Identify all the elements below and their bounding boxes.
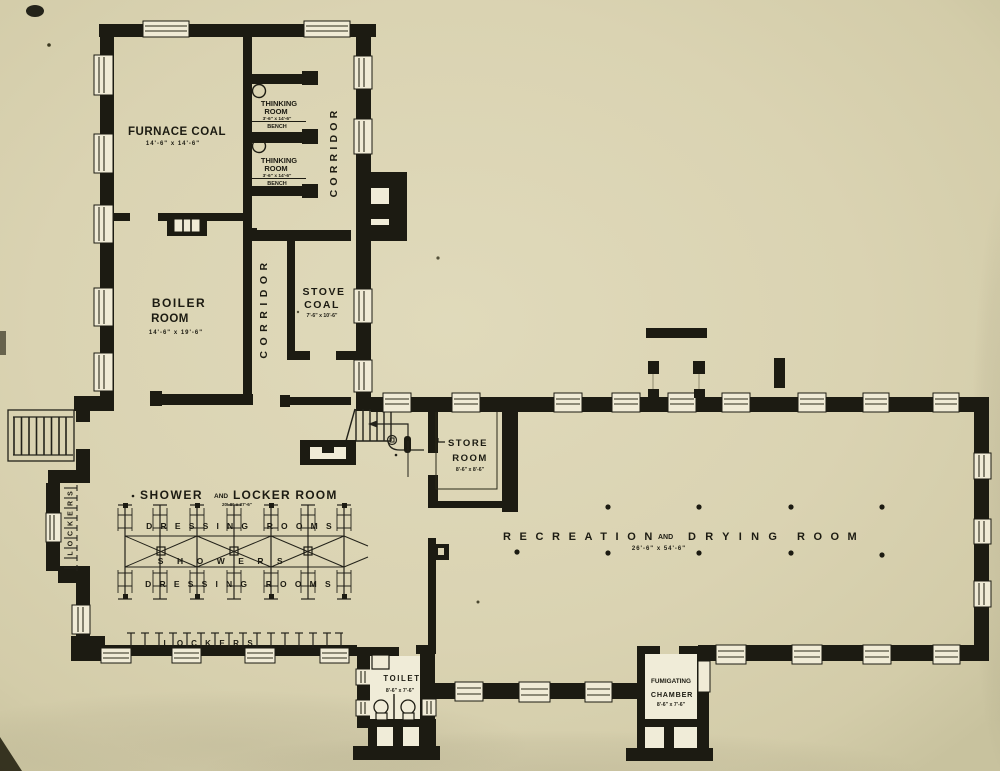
svg-text:14'-6" x 14'-6": 14'-6" x 14'-6"	[146, 141, 200, 147]
svg-text:FUMIGATING: FUMIGATING	[651, 678, 691, 685]
svg-text:ROOM: ROOM	[264, 107, 287, 116]
svg-text:E: E	[219, 639, 225, 648]
svg-text:STOVE: STOVE	[303, 286, 346, 298]
svg-text:L: L	[164, 639, 169, 648]
svg-text:S: S	[67, 491, 74, 496]
svg-text:BENCH: BENCH	[267, 181, 287, 187]
svg-text:8'-6" x 7'-6": 8'-6" x 7'-6"	[386, 688, 415, 694]
svg-text:SHOWERS: SHOWERS	[158, 556, 296, 566]
svg-text:C: C	[191, 639, 197, 648]
svg-text:DRESSING ROOMS: DRESSING ROOMS	[145, 579, 339, 589]
svg-text:STORE: STORE	[448, 438, 488, 449]
svg-text:CORRIDOR: CORRIDOR	[258, 257, 270, 358]
svg-text:ROOM: ROOM	[797, 531, 865, 543]
svg-text:R: R	[233, 639, 239, 648]
svg-text:26'-6" x 54'-6": 26'-6" x 54'-6"	[632, 546, 686, 552]
svg-text:ROOM: ROOM	[151, 313, 189, 325]
svg-text:CORRIDOR: CORRIDOR	[328, 107, 340, 198]
svg-text:ROOM: ROOM	[264, 164, 287, 173]
svg-text:AND: AND	[214, 493, 228, 500]
svg-text:C: C	[67, 531, 74, 536]
svg-text:K: K	[205, 639, 211, 648]
svg-text:BENCH: BENCH	[267, 124, 287, 130]
svg-text:L: L	[67, 551, 74, 556]
svg-text:S: S	[247, 639, 253, 648]
svg-text:LOCKER ROOM: LOCKER ROOM	[233, 488, 338, 502]
svg-text:K: K	[67, 521, 74, 526]
svg-text:8'-6" x 8'-6": 8'-6" x 8'-6"	[456, 467, 485, 473]
svg-text:DRESSING ROOMS: DRESSING ROOMS	[146, 521, 340, 531]
svg-text:TOILET: TOILET	[383, 674, 420, 683]
svg-text:AND: AND	[658, 534, 673, 541]
svg-text:20'-0" x 37'-6": 20'-0" x 37'-6"	[222, 502, 252, 507]
svg-text:14'-6" x 19'-6": 14'-6" x 19'-6"	[149, 330, 203, 336]
svg-text:COAL: COAL	[304, 299, 340, 311]
svg-text:BOILER: BOILER	[152, 296, 206, 310]
svg-text:RECREATION: RECREATION	[503, 531, 661, 543]
svg-text:O: O	[177, 639, 183, 648]
svg-text:E: E	[67, 511, 74, 516]
svg-text:R: R	[67, 501, 74, 506]
svg-text:CHAMBER: CHAMBER	[651, 690, 693, 699]
svg-text:O: O	[67, 540, 74, 546]
svg-text:3'-6" x 14'-6": 3'-6" x 14'-6"	[263, 173, 292, 179]
svg-text:7'-6" x 10'-6": 7'-6" x 10'-6"	[306, 313, 338, 319]
svg-text:FURNACE COAL: FURNACE COAL	[128, 126, 226, 138]
svg-text:3'-6" x 14'-6": 3'-6" x 14'-6"	[263, 116, 292, 122]
svg-text:DRYING: DRYING	[688, 531, 786, 543]
svg-text:ROOM: ROOM	[452, 453, 488, 464]
svg-text:8'-6" x 7'-6": 8'-6" x 7'-6"	[657, 702, 686, 708]
svg-text:SHOWER: SHOWER	[140, 488, 203, 502]
